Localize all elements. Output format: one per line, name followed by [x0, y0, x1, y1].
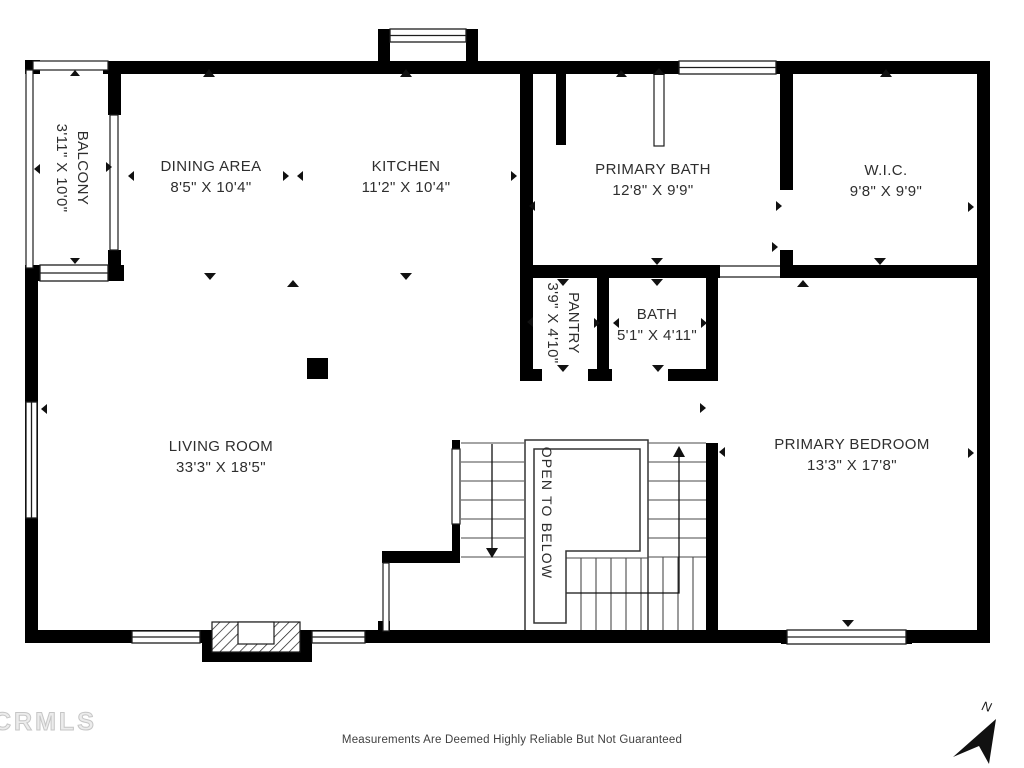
bath-door-leaf: [654, 74, 664, 146]
room-dims: 3'11" X 10'0": [51, 124, 72, 213]
kitchen-window: [390, 29, 466, 42]
room-label-bath: BATH 5'1" X 4'11": [617, 304, 697, 346]
fireplace: [202, 622, 312, 662]
exterior-walls: [25, 29, 990, 643]
door-markers: [34, 68, 974, 627]
living-room-bottom-window-right: [312, 631, 365, 643]
room-dims: 8'5" X 10'4": [160, 177, 261, 198]
balcony-window: [40, 265, 108, 281]
room-label-primary-bedroom: PRIMARY BEDROOM 13'3" X 17'8": [774, 434, 929, 476]
windows: [26, 29, 912, 644]
room-dims: 5'1" X 4'11": [617, 325, 697, 346]
room-dims: 33'3" X 18'5": [169, 457, 273, 478]
room-dims: 9'8" X 9'9": [850, 181, 923, 202]
balcony-left-railing: [26, 70, 33, 268]
staircase: [461, 440, 706, 632]
living-room-bottom-window-left: [132, 631, 200, 643]
room-dims: 3'9" X 4'10": [542, 282, 563, 363]
firebox: [238, 622, 274, 644]
room-name: LIVING ROOM: [169, 436, 273, 457]
room-name: PRIMARY BATH: [595, 159, 711, 180]
room-name: KITCHEN: [362, 156, 451, 177]
room-label-dining-area: DINING AREA 8'5" X 10'4": [160, 156, 261, 198]
kitchen-column: [307, 358, 328, 379]
room-name: PRIMARY BEDROOM: [774, 434, 929, 455]
balcony-top-railing: [33, 61, 108, 70]
room-label-living-room: LIVING ROOM 33'3" X 18'5": [169, 436, 273, 478]
northeast-arrow-icon: [953, 719, 996, 764]
entry-partition: [383, 563, 389, 631]
room-label-pantry: PANTRY 3'9" X 4'10": [542, 282, 584, 363]
balcony-sliding-door: [110, 115, 118, 250]
hall-opening: [720, 266, 780, 277]
room-name: DINING AREA: [160, 156, 261, 177]
primary-bedroom-window: [781, 630, 912, 644]
primary-bath-window: [675, 61, 780, 74]
room-name: BALCONY: [72, 124, 93, 213]
stair-railing: [452, 449, 460, 524]
floorplan-drawing: [0, 0, 1024, 768]
crmls-watermark: CRMLS: [0, 708, 97, 737]
room-name: BATH: [617, 304, 697, 325]
room-label-wic: W.I.C. 9'8" X 9'9": [850, 160, 923, 202]
room-name: W.I.C.: [850, 160, 923, 181]
living-room-left-window: [26, 402, 37, 518]
room-label-balcony: BALCONY 3'11" X 10'0": [51, 124, 93, 213]
room-dims: 11'2" X 10'4": [362, 177, 451, 198]
room-label-kitchen: KITCHEN 11'2" X 10'4": [362, 156, 451, 198]
room-label-primary-bath: PRIMARY BATH 12'8" X 9'9": [595, 159, 711, 201]
disclaimer-text: Measurements Are Deemed Highly Reliable …: [342, 734, 682, 746]
open-to-below-label: OPEN TO BELOW: [539, 447, 555, 580]
floorplan-page: BALCONY 3'11" X 10'0" DINING AREA 8'5" X…: [0, 0, 1024, 768]
room-dims: 13'3" X 17'8": [774, 455, 929, 476]
room-dims: 12'8" X 9'9": [595, 180, 711, 201]
room-name: PANTRY: [563, 282, 584, 363]
